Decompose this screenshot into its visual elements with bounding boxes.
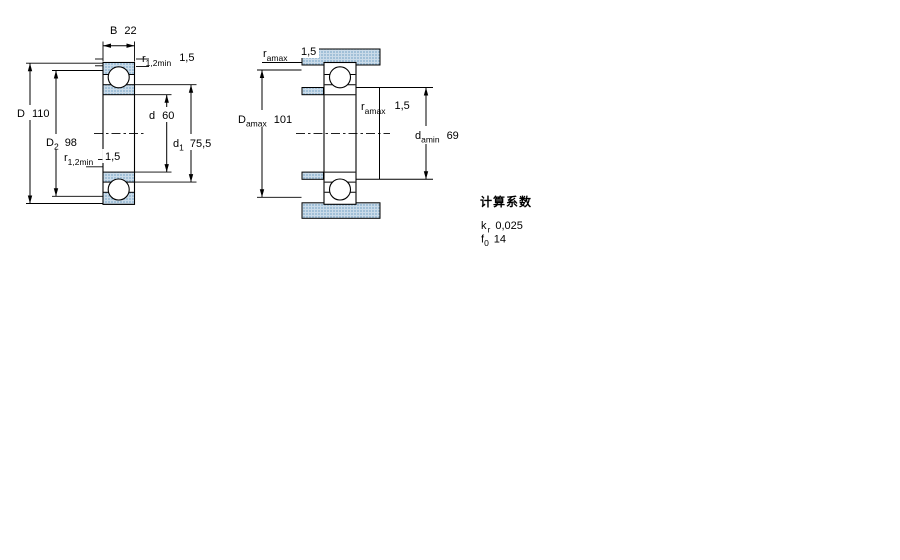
label-r-bottom: r1,2min <box>64 152 93 167</box>
arrowhead <box>260 70 264 78</box>
dim-damin: damin69 <box>413 88 464 180</box>
arrowhead <box>127 44 135 48</box>
label-D: D110 <box>17 108 50 120</box>
arrowhead <box>103 44 111 48</box>
dim-d1: d175,5 <box>135 85 217 182</box>
ball-bottom <box>108 179 129 200</box>
dim-D: D110 <box>15 63 103 203</box>
arrowhead <box>260 189 264 197</box>
label-B: B22 <box>110 25 137 37</box>
calculation-factors-title: 计算系数 <box>480 194 532 209</box>
label-r-amax-top-value: 1,5 <box>301 46 316 58</box>
arrowhead <box>424 88 428 96</box>
arrowhead <box>54 188 58 196</box>
right-bearing-mounted <box>296 49 433 218</box>
arrowhead <box>54 71 58 79</box>
label-r-bottom-value: 1,5 <box>105 151 120 163</box>
arrowhead <box>424 171 428 179</box>
factor-kr: kr0,025 <box>481 220 523 235</box>
factor-f0: f014 <box>481 234 506 249</box>
dim-d: d60 <box>135 95 174 172</box>
label-d: d60 <box>149 110 174 122</box>
arrowhead <box>165 164 169 172</box>
shaft-shoulder-top <box>302 88 324 95</box>
label-d1: d175,5 <box>173 138 211 153</box>
label-r-amax-mid: ramax1,5 <box>361 100 410 116</box>
calculation-factors-block: 计算系数 kr0,025 f014 <box>480 194 532 248</box>
arrowhead <box>165 95 169 103</box>
arrowhead <box>189 85 193 93</box>
housing-bottom <box>302 203 380 219</box>
technical-drawing: B22 r1,2min1,5 D110 D2 <box>0 0 900 560</box>
arrowhead <box>28 196 32 204</box>
bearing-drawing-canvas: B22 r1,2min1,5 D110 D2 <box>0 0 900 560</box>
dim-B: B22 <box>103 25 137 62</box>
dim-r-amax-mid: ramax1,5 <box>361 100 410 116</box>
ball-top <box>108 67 129 88</box>
label-r-top: r1,2min1,5 <box>142 52 194 68</box>
shaft-shoulder-bottom <box>302 172 324 179</box>
ball-top <box>330 67 351 88</box>
dim-Damax: Damax101 <box>236 70 302 197</box>
label-r-amax-top: ramax <box>263 48 288 63</box>
arrowhead <box>28 63 32 71</box>
arrowhead <box>189 174 193 182</box>
left-bearing-section <box>94 63 146 205</box>
dim-D2: D298 <box>44 71 103 197</box>
ball-bottom <box>330 179 351 200</box>
